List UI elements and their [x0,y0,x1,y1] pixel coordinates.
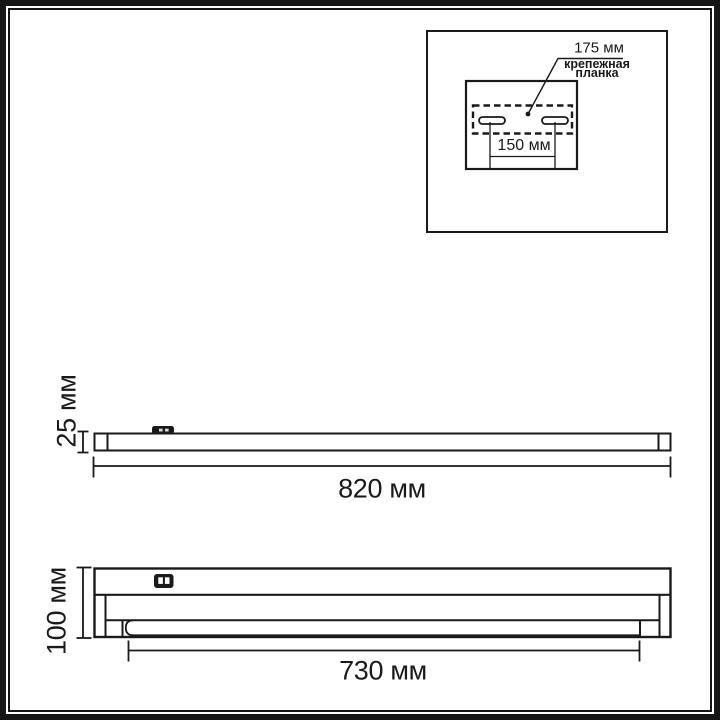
plate-name-label: крепежная планка [564,60,630,78]
side-view-height-label: 25 мм [52,374,83,447]
mounting-slot-icon [479,117,505,124]
front-view [77,568,671,662]
front-view-tube-length-label: 730 мм [339,656,427,687]
switch-button [159,429,163,432]
dimension-diagram-page: { "diagram": { "title_hint": "linear lum… [0,0,720,720]
fixture-back-outline [466,81,577,169]
switch-button [158,577,163,584]
power-switch-icon [152,426,174,434]
switch-button [165,577,170,584]
lamp-tube-outline [126,620,640,635]
hole-spacing-label: 150 мм [497,137,550,155]
luminaire-side-body [95,434,671,451]
mounting-plate-inset [427,31,667,232]
inset-frame [427,31,667,232]
drawing-canvas [0,0,720,720]
luminaire-front-body [95,569,671,638]
front-view-height-label: 100 мм [42,567,73,655]
side-view-length-label: 820 мм [338,474,426,505]
plate-length-label: 175 мм [574,40,624,57]
side-view [78,426,671,478]
mounting-plate-dashed-outline [473,106,572,134]
power-switch-icon [154,574,174,588]
switch-button [165,429,169,432]
